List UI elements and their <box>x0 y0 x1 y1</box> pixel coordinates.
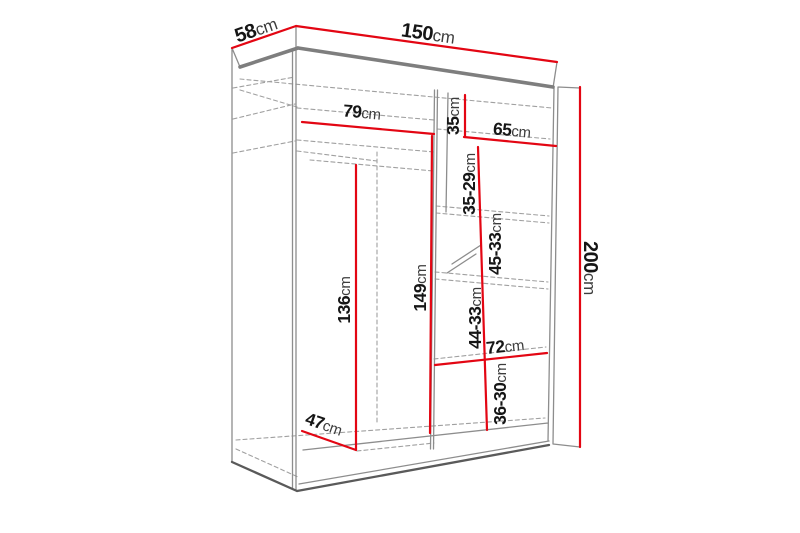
dim-width-value: 150 <box>400 19 435 45</box>
cabinet-outline-path <box>232 26 580 490</box>
dim-width-unit: cm <box>431 26 456 48</box>
dim-height-unit: cm <box>580 273 599 295</box>
dim-shelf-gap-3-unit: cm <box>468 287 485 306</box>
wardrobe-outline <box>232 26 580 490</box>
dim-shelf-gap-2-value: 45-33 <box>485 232 505 275</box>
dim-label-height: 200cm <box>579 241 601 295</box>
dim-line-left-shelf <box>302 122 434 134</box>
top-edge-path <box>240 48 553 87</box>
dim-floor-depth-unit: cm <box>320 417 344 439</box>
dim-label-shelf-gap-1: 35-29cm <box>459 153 479 215</box>
dim-shelf-gap-1-unit: cm <box>462 153 479 172</box>
dim-shelf-gap-1-value: 35-29 <box>459 172 479 215</box>
dim-label-shelf-gap-4: 36-30cm <box>490 363 510 425</box>
dim-label-top-niche: 35cm <box>443 97 463 135</box>
dim-label-shelf-gap-3: 44-33cm <box>465 287 485 349</box>
dimension-labels: 58cm 150cm 200cm 79cm 65cm 35cm 35-29cm … <box>232 13 601 440</box>
dim-height-value: 200 <box>579 241 601 273</box>
dim-label-bottom-shelf: 72cm <box>485 334 525 358</box>
dim-label-shelf-gap-2: 45-33cm <box>485 213 505 275</box>
wardrobe-diagram: 58cm 150cm 200cm 79cm 65cm 35cm 35-29cm … <box>0 0 800 533</box>
dim-top-niche-value: 35 <box>443 116 463 135</box>
dim-shelf-gap-3-value: 44-33 <box>465 306 485 349</box>
wardrobe-top-edges <box>240 48 553 87</box>
dim-right-shelf-unit: cm <box>511 123 532 142</box>
dim-label-width: 150cm <box>400 19 457 48</box>
dim-left-shelf-unit: cm <box>361 105 382 124</box>
dim-hanging-height-value: 136 <box>334 295 354 323</box>
dim-bottom-shelf-unit: cm <box>504 337 525 356</box>
dim-label-depth: 58cm <box>232 13 280 48</box>
dim-hanging-height-unit: cm <box>337 276 354 295</box>
diagram-canvas: 58cm 150cm 200cm 79cm 65cm 35cm 35-29cm … <box>0 0 800 533</box>
mirror-icon <box>447 245 481 273</box>
dim-inner-height-unit: cm <box>413 264 430 283</box>
dim-label-inner-height: 149cm <box>410 264 430 311</box>
divider-path <box>431 90 449 449</box>
dim-shelf-gap-4-value: 36-30 <box>490 382 510 425</box>
dim-top-niche-unit: cm <box>446 97 463 116</box>
dimension-lines <box>232 26 580 450</box>
dim-shelf-gap-4-unit: cm <box>493 363 510 382</box>
dim-shelf-gap-2-unit: cm <box>488 213 505 232</box>
dim-label-right-shelf: 65cm <box>492 118 531 141</box>
dim-depth-unit: cm <box>253 14 280 39</box>
dim-label-left-shelf: 79cm <box>342 100 381 123</box>
dim-inner-height-value: 149 <box>410 283 430 311</box>
dim-label-hanging-height: 136cm <box>334 276 354 323</box>
